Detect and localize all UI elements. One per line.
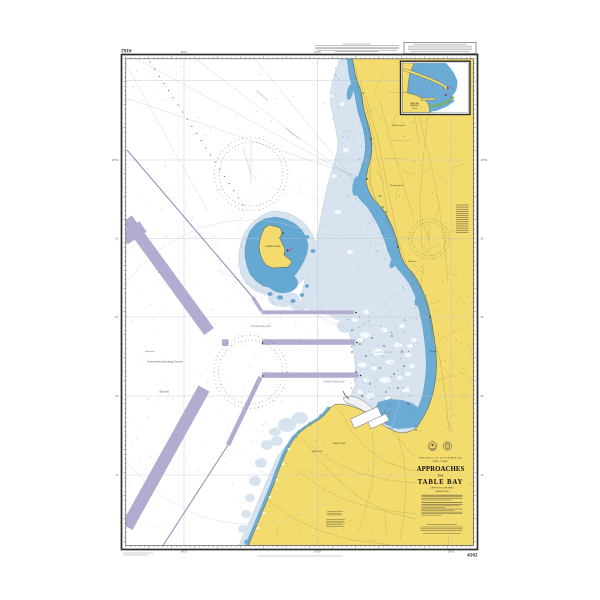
svg-text:34°: 34°	[481, 316, 485, 319]
svg-text:DEPTHS IN METRES: DEPTHS IN METRES	[430, 488, 454, 490]
svg-text:REPUBLIC OF SOUTH AFRICA: REPUBLIC OF SOUTH AFRICA	[419, 457, 462, 460]
svg-text:34°: 34°	[115, 316, 119, 319]
svg-text:TO: TO	[438, 473, 444, 477]
svg-text:Ammunition Dumping Ground: Ammunition Dumping Ground	[146, 360, 183, 364]
svg-text:TABLE BAY: TABLE BAY	[373, 351, 394, 354]
svg-text:33°50': 33°50'	[112, 159, 119, 162]
svg-text:18°30': 18°30'	[448, 551, 455, 554]
svg-text:18°20': 18°20'	[314, 51, 321, 54]
svg-text:18°10': 18°10'	[181, 551, 188, 554]
svg-text:1:30 000: 1:30 000	[412, 108, 417, 110]
svg-text:Bloubergstrand: Bloubergstrand	[390, 184, 404, 187]
svg-text:ROBBEN ISLAND: ROBBEN ISLAND	[265, 245, 281, 248]
svg-text:Explosives: Explosives	[145, 351, 155, 353]
svg-text:SEA POINT: SEA POINT	[312, 450, 323, 453]
svg-text:(Disused): (Disused)	[159, 392, 169, 394]
svg-text:Milnerton: Milnerton	[408, 260, 417, 263]
svg-text:Rietvlei: Rietvlei	[430, 350, 437, 353]
svg-text:SCALE 1:75 000: SCALE 1:75 000	[435, 490, 448, 493]
svg-text:4162: 4162	[467, 553, 478, 559]
svg-text:55': 55'	[481, 238, 485, 241]
svg-text:10': 10'	[481, 474, 485, 477]
svg-text:HARBOUR: HARBOUR	[410, 104, 419, 107]
svg-text:05': 05'	[115, 395, 119, 398]
svg-text:33°50': 33°50'	[481, 159, 488, 162]
svg-text:Precautionary Area: Precautionary Area	[251, 325, 271, 328]
svg-text:Melkbosstrand: Melkbosstrand	[392, 124, 406, 127]
svg-text:18°10': 18°10'	[181, 51, 188, 54]
svg-text:10': 10'	[115, 474, 119, 477]
svg-text:55': 55'	[115, 238, 119, 241]
svg-text:APPROACHES: APPROACHES	[417, 466, 465, 473]
svg-text:05': 05'	[481, 395, 485, 398]
svg-text:18°20': 18°20'	[314, 551, 321, 554]
svg-text:WEST COAST: WEST COAST	[433, 460, 449, 463]
svg-text:4162: 4162	[121, 47, 132, 53]
svg-text:GREEN POINT: GREEN POINT	[332, 443, 346, 445]
svg-text:Inshore Traffic Zone: Inshore Traffic Zone	[323, 381, 345, 384]
svg-text:TABLE BAY: TABLE BAY	[418, 479, 464, 486]
